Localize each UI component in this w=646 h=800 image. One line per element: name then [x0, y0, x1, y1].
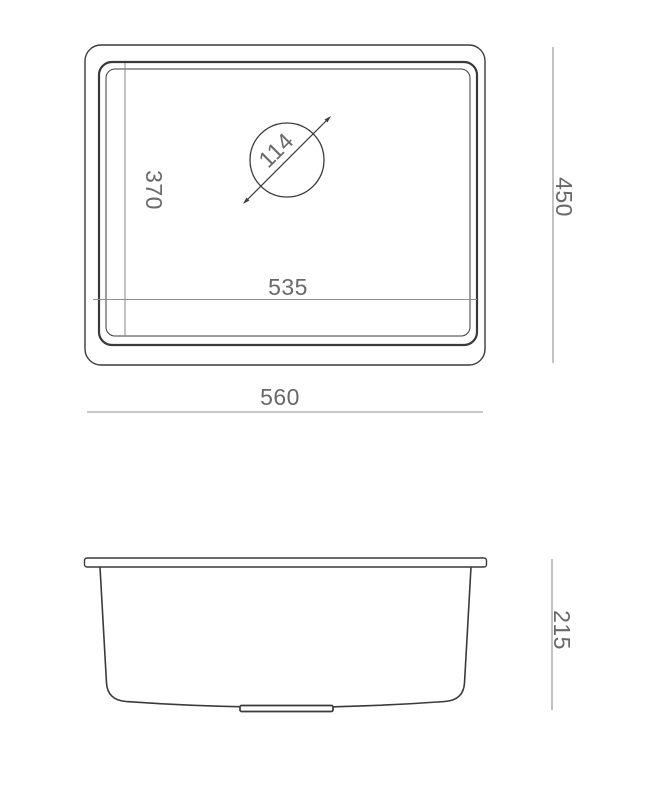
side-view: 215	[85, 558, 576, 712]
side-view-outlines	[85, 558, 487, 712]
bowl-width-label: 535	[268, 274, 308, 300]
overall-width-label: 560	[260, 384, 300, 410]
top-view: 370 114 535 560 450	[85, 45, 577, 412]
sink-dimension-drawing-page: 370 114 535 560 450 215	[0, 0, 646, 800]
top-view-dimension-labels: 370 114 535 560 450	[141, 127, 577, 410]
overall-depth-label: 450	[551, 177, 577, 217]
side-view-rim-flange	[85, 558, 487, 567]
side-view-drain-fitting	[240, 706, 333, 712]
bowl-depth-label: 370	[141, 170, 167, 210]
side-view-bowl-body	[100, 567, 471, 707]
sink-dimension-drawing: 370 114 535 560 450 215	[0, 0, 646, 800]
side-view-dimension-labels: 215	[549, 610, 575, 650]
height-label: 215	[549, 610, 575, 650]
